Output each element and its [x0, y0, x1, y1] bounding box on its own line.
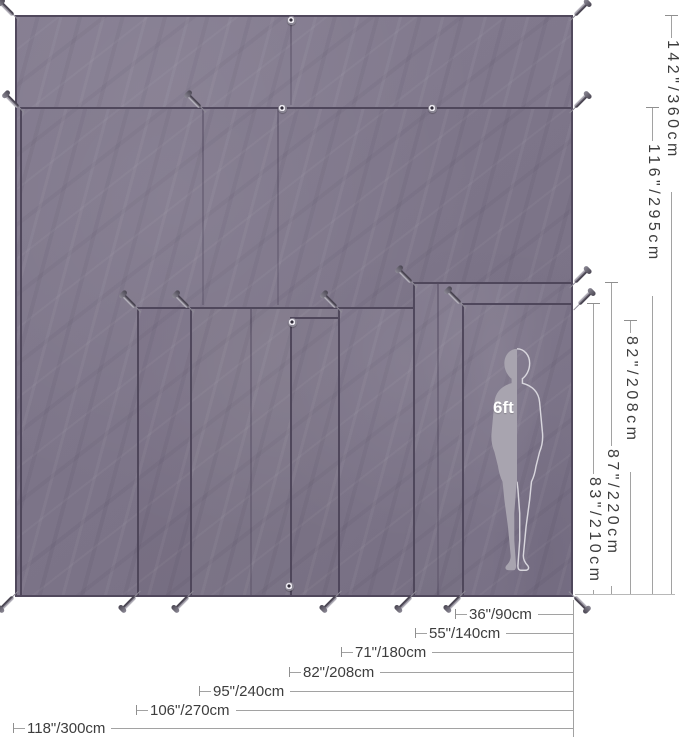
person-height-label: 6ft — [493, 398, 514, 418]
dim-label: 36"/90cm — [467, 606, 538, 623]
grommet-icon — [285, 582, 294, 591]
dim-width-82: 82"/208cm — [289, 664, 573, 680]
dim-label: 118"/300cm — [25, 720, 111, 737]
dim-label: 82"/208cm — [301, 664, 380, 681]
dim-width-106: 106"/270cm — [136, 702, 573, 718]
dim-width-55: 55"/140cm — [415, 625, 573, 641]
tarp-seam — [277, 109, 279, 305]
grommet-icon — [428, 104, 437, 113]
dim-width-71: 71"/180cm — [341, 644, 573, 660]
tarp-seam — [202, 109, 204, 305]
dim-label: 87"/220cm — [603, 449, 621, 556]
dim-label: 106"/270cm — [148, 702, 236, 719]
dim-width-118: 118"/300cm — [13, 720, 573, 736]
dim-label: 71"/180cm — [353, 644, 432, 661]
dim-label: 55"/140cm — [427, 625, 506, 642]
dim-label: 142"/360cm — [663, 40, 679, 160]
tarp-seam — [250, 309, 252, 595]
dimension-baseline — [575, 594, 675, 595]
dimension-connector-line — [573, 600, 574, 737]
tarp-seam — [437, 284, 439, 595]
dim-width-95: 95"/240cm — [199, 683, 573, 699]
grommet-icon — [278, 104, 287, 113]
dim-label: 95"/240cm — [211, 683, 290, 700]
dim-label: 82"/208cm — [622, 336, 640, 443]
grommet-icon — [288, 318, 297, 327]
dim-width-36: 36"/90cm — [455, 606, 573, 622]
dim-label: 83"/210cm — [585, 477, 603, 584]
tarp-size-comparison-diagram: 6ft 142"/360cm 116"/295cm 82"/208cm 87"/… — [0, 0, 679, 743]
dim-label: 116"/295cm — [644, 144, 662, 263]
tarp-seam — [290, 17, 292, 105]
person-silhouette — [470, 341, 564, 579]
grommet-icon — [287, 16, 296, 25]
